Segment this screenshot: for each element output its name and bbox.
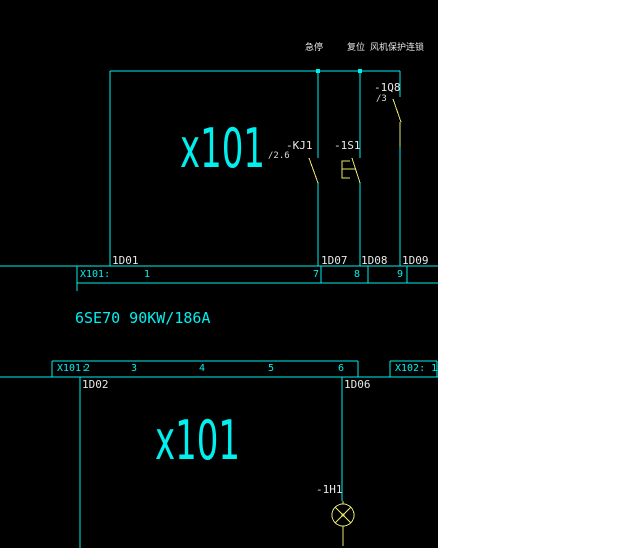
no-contact-kj1 <box>309 158 318 183</box>
strip2-terminal-5: 5 <box>268 363 274 374</box>
strip1-terminal-9: 9 <box>397 269 403 280</box>
component-tag-q8: -1Q8 <box>374 82 401 93</box>
contact-q8 <box>393 71 401 266</box>
wire-label-1d08: 1D08 <box>361 255 388 266</box>
lamp-center-dot <box>342 514 345 517</box>
schematic-canvas: 急停 复位 风机保护连锁 -1Q8 /3 -KJ1 /2.6 -1S1 x101… <box>0 0 438 548</box>
wire-label-1d09: 1D09 <box>402 255 429 266</box>
contact-kj1 <box>309 71 318 266</box>
no-contact-q8 <box>393 99 401 122</box>
strip2-terminal-6: 6 <box>338 363 344 374</box>
wire-label-1d02: 1D02 <box>82 379 109 390</box>
box-label-x101-bottom: x101 <box>155 416 240 466</box>
component-tag-1h1: -1H1 <box>316 484 343 495</box>
component-tag-s1: -1S1 <box>334 140 361 151</box>
strip2-label: X101: <box>57 363 87 374</box>
wire-label-1d06: 1D06 <box>344 379 371 390</box>
strip2-terminal-2: 2 <box>84 363 90 374</box>
lamp-1h1-icon <box>332 501 354 546</box>
contact-s1 <box>342 71 360 266</box>
component-ref-kj1: /2.6 <box>268 151 290 161</box>
signal-label-reset: 复位 <box>347 43 365 54</box>
strip1-terminal-8: 8 <box>354 269 360 280</box>
strip2-terminal-3: 3 <box>131 363 137 374</box>
cad-drawing-view: 急停 复位 风机保护连锁 -1Q8 /3 -KJ1 /2.6 -1S1 x101… <box>0 0 640 548</box>
component-ref-q8: /3 <box>376 94 387 104</box>
wire-label-1d01: 1D01 <box>112 255 139 266</box>
strip2-terminal-4: 4 <box>199 363 205 374</box>
strip-x102-label: X102: 13 <box>395 363 443 374</box>
strip1-label: X101: <box>80 269 110 280</box>
wire-label-1d07: 1D07 <box>321 255 348 266</box>
blank-side-panel <box>438 0 640 548</box>
component-tag-kj1: -KJ1 <box>286 140 313 151</box>
strip1-terminal-7: 7 <box>313 269 319 280</box>
no-contact-s1 <box>352 158 360 183</box>
signal-label-estop: 急停 <box>305 43 323 54</box>
box-label-x101-top: x101 <box>180 124 265 174</box>
drive-rating-label: 6SE70 90KW/186A <box>75 310 210 326</box>
strip1-terminal-1: 1 <box>144 269 150 280</box>
terminal-strip-x101-top <box>0 266 438 291</box>
signal-label-fan-protect: 风机保护连锁 <box>370 43 424 54</box>
